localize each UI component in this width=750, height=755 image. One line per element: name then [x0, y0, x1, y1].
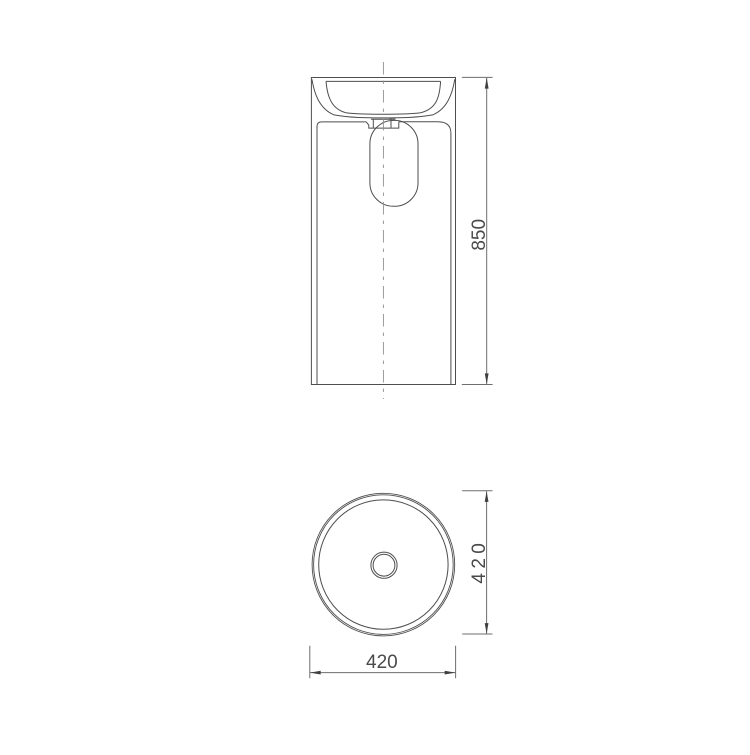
svg-text:420: 420 — [366, 652, 398, 673]
svg-text:420: 420 — [469, 539, 490, 584]
svg-text:850: 850 — [469, 219, 490, 251]
